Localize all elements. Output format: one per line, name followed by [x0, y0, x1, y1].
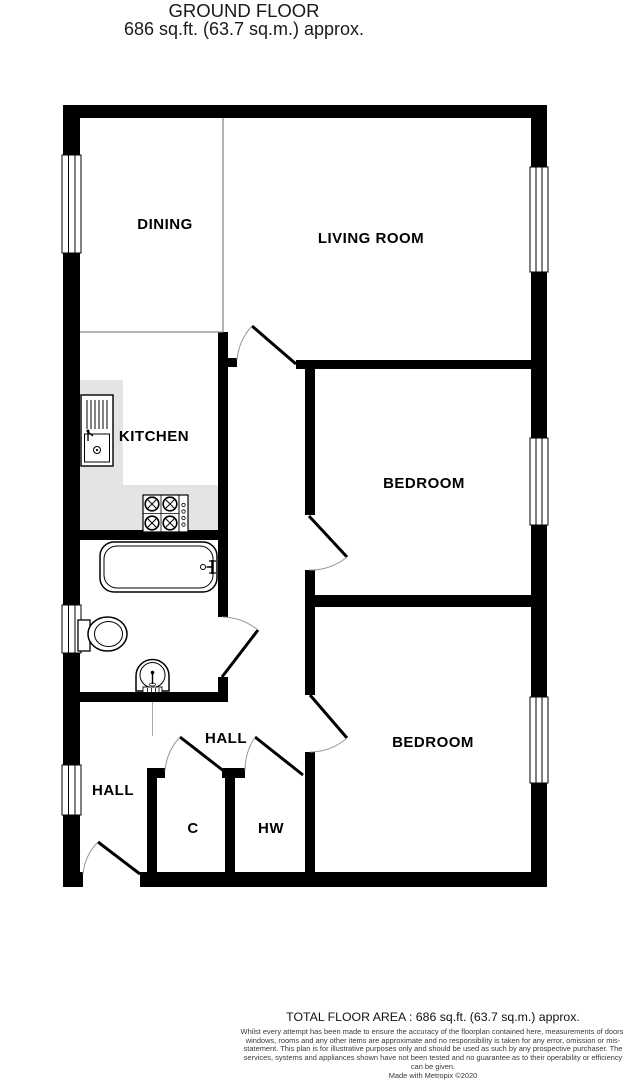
closet-c-door-stub — [147, 768, 165, 778]
footer-block: TOTAL FLOOR AREA : 686 sq.ft. (63.7 sq.m… — [238, 1010, 624, 1081]
door-entry — [83, 842, 140, 874]
wall-top — [63, 105, 547, 118]
bath-bottom-wall — [80, 692, 228, 702]
bathtub — [100, 542, 217, 592]
room-label-hall-middle: HALL — [205, 730, 247, 747]
wall-bottom-left — [63, 872, 83, 887]
floorplan-canvas: DINING LIVING ROOM KITCHEN BEDROOM BEDRO… — [0, 0, 624, 1080]
room-label-bedroom1: BEDROOM — [383, 475, 465, 492]
kitchen-door-stub — [228, 358, 237, 367]
window-hall — [62, 765, 81, 815]
closets-divider-stub — [222, 768, 245, 778]
room-label-hall-left: HALL — [92, 782, 134, 799]
kitchen-sink-unit — [81, 395, 113, 466]
door-inner-hall — [237, 326, 296, 364]
window-bedroom1 — [530, 438, 548, 525]
room-label-hw: HW — [258, 820, 284, 837]
door-bedroom2 — [310, 695, 347, 752]
total-floor-area: TOTAL FLOOR AREA : 686 sq.ft. (63.7 sq.m… — [238, 1010, 624, 1024]
closets-divider-wall — [225, 772, 235, 872]
room-label-closet: C — [187, 820, 198, 837]
bedrooms-divider-wall — [305, 595, 547, 607]
hob — [143, 495, 188, 532]
window-dining — [62, 155, 81, 253]
room-label-dining: DINING — [137, 216, 193, 233]
toilet — [78, 617, 127, 651]
disclaimer-text: Whilst every attempt has been made to en… — [238, 1028, 624, 1072]
kitchen-bath-right-wall — [218, 332, 228, 617]
door-bathroom — [222, 617, 258, 677]
metropix-credit: Made with Metropix ©2020 — [238, 1072, 624, 1081]
wall-bottom — [140, 872, 547, 887]
closet-c-left-wall — [147, 772, 157, 872]
window-bedroom2 — [530, 697, 548, 783]
living-room-bottom-wall — [296, 360, 547, 369]
bedroom2-left-wall-upper — [305, 607, 315, 695]
window-living-room — [530, 167, 548, 272]
pedestal-basin — [136, 660, 169, 693]
room-label-living-room: LIVING ROOM — [318, 230, 424, 247]
room-label-bedroom2: BEDROOM — [392, 734, 474, 751]
bedroom1-left-wall-upper — [305, 369, 315, 515]
room-label-kitchen: KITCHEN — [119, 428, 189, 445]
door-hot-water-cupboard — [245, 737, 303, 775]
bedroom2-left-wall-lower — [305, 752, 315, 872]
door-bedroom1 — [309, 516, 347, 570]
